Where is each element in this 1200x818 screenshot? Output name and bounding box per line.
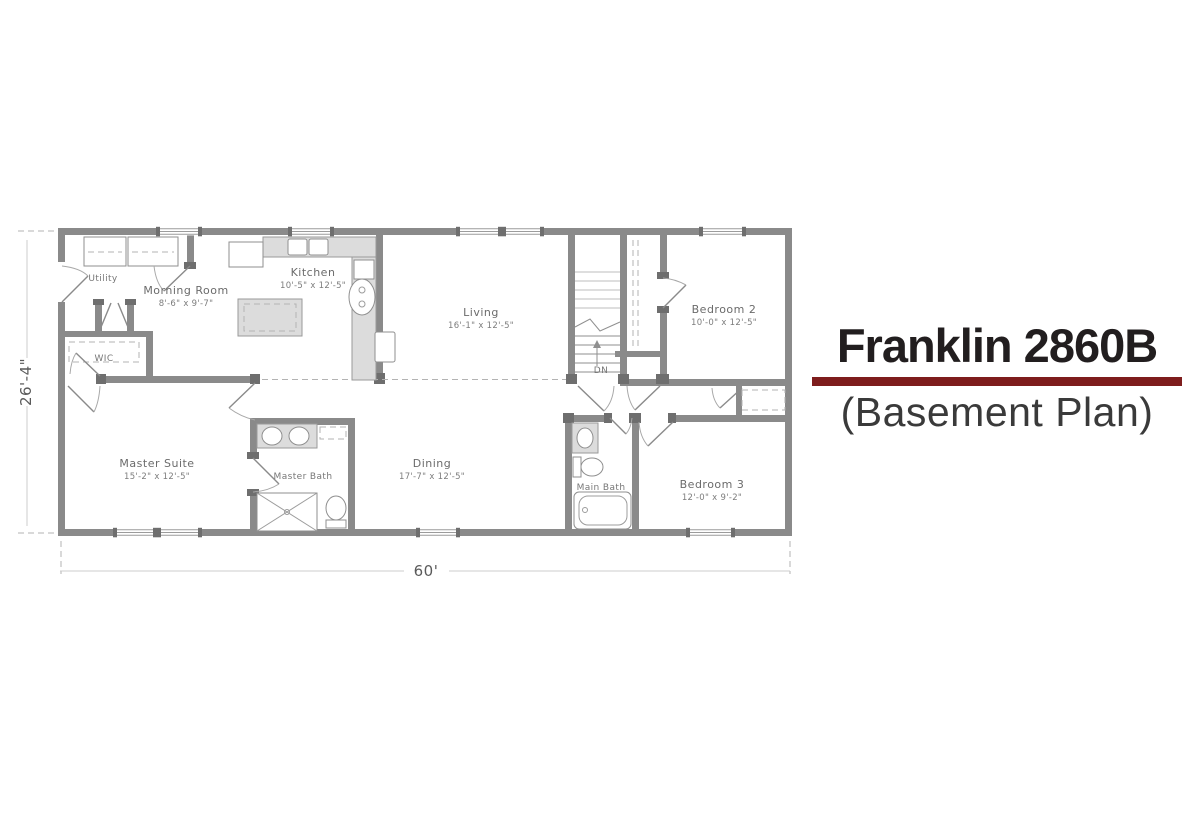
stairs-dn-label: DN: [594, 366, 608, 376]
room-dims-bedroom-2: 10'-0" x 12'-5": [691, 318, 757, 328]
entry-door: [62, 266, 88, 302]
room-dims-kitchen: 10'-5" x 12'-5": [280, 281, 346, 291]
window-kitchen: [288, 227, 334, 237]
kitchen-island: [238, 299, 302, 336]
main-bath-toilet-tank: [573, 457, 581, 477]
window-dining: [416, 528, 460, 538]
room-dims-master-suite: 15'-2" x 12'-5": [124, 472, 190, 482]
window-master-left: [113, 528, 157, 538]
dimension-depth: 26'-4": [17, 231, 56, 533]
stair-break-line: [575, 319, 620, 331]
window-living-left: [456, 227, 502, 237]
kitchen-fixtures: [229, 237, 395, 380]
hall-closet-fixtures: [742, 390, 785, 410]
room-dims-dining: 17'-7" x 12'-5": [399, 472, 465, 482]
window-bedroom-3: [686, 528, 735, 538]
stair-hall-door-left: [578, 386, 614, 411]
window-master-right: [157, 528, 202, 538]
room-label-master-bath: Master Bath: [274, 472, 333, 482]
title-block: Franklin 2860B (Basement Plan): [810, 320, 1184, 433]
bedroom-3-door: [639, 422, 673, 446]
bedroom-2-closet-shelf: [742, 390, 785, 410]
dimension-width: 60': [60, 541, 790, 580]
wall-oven: [354, 260, 374, 279]
window-bedroom-2: [699, 227, 746, 237]
cooktop: [349, 279, 375, 315]
linen-shelf: [320, 427, 346, 439]
master-sink-right: [289, 427, 309, 445]
master-sink-left: [262, 427, 282, 445]
main-bath-door: [610, 418, 632, 434]
room-dims-bedroom-3: 12'-0" x 9'-2": [682, 493, 742, 503]
room-label-utility: Utility: [88, 274, 118, 284]
window-morning-room: [156, 227, 202, 237]
morning-room-closet-bifold: [99, 303, 130, 332]
range: [229, 242, 263, 267]
master-suite-door-hall: [229, 383, 255, 420]
room-label-living: Living: [463, 306, 499, 319]
room-label-kitchen: Kitchen: [291, 266, 336, 279]
bedroom-2-door: [663, 278, 686, 308]
kitchen-sink-right: [309, 239, 328, 255]
refrigerator: [375, 332, 395, 362]
page: Utility Morning Room 8'-6" x 9'-7" Kitch…: [0, 0, 1200, 818]
room-label-morning-room: Morning Room: [143, 284, 228, 297]
depth-dimension-label: 26'-4": [17, 358, 35, 406]
main-bath-toilet: [581, 458, 603, 476]
window-living-right: [502, 227, 544, 237]
plan-subtitle: (Basement Plan): [810, 392, 1184, 433]
master-toilet: [326, 496, 346, 520]
room-label-bedroom-3: Bedroom 3: [680, 478, 745, 491]
stair-hall-door-right: [627, 386, 660, 410]
master-suite-door-left: [68, 386, 100, 412]
title-divider-rule: [812, 377, 1182, 386]
room-label-dining: Dining: [413, 457, 452, 470]
plan-title: Franklin 2860B: [810, 320, 1184, 372]
utility-fixtures: [84, 237, 178, 266]
room-label-main-bath: Main Bath: [577, 483, 626, 493]
room-dims-living: 16'-1" x 12'-5": [448, 321, 514, 331]
room-label-bedroom-2: Bedroom 2: [692, 303, 757, 316]
room-label-wic: WIC: [94, 354, 113, 364]
kitchen-sink-left: [288, 239, 307, 255]
main-bath-sink: [577, 428, 593, 448]
width-dimension-label: 60': [414, 562, 439, 580]
room-dims-morning-room: 8'-6" x 9'-7": [159, 299, 214, 309]
main-bath-fixtures: [572, 423, 631, 529]
room-label-master-suite: Master Suite: [119, 457, 194, 470]
